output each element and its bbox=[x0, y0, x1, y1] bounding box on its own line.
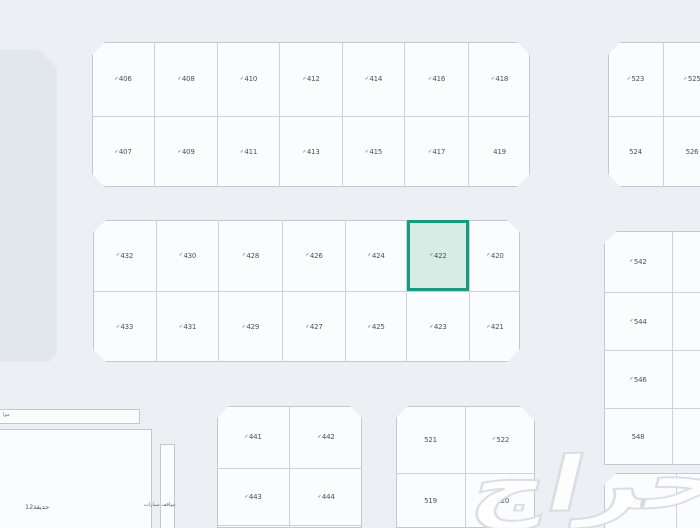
check-icon: ✓ bbox=[177, 149, 181, 155]
plot-number: ✓423 bbox=[429, 323, 446, 331]
block-center-west: ✓432✓430✓428✓426✓424✓422✓420✓433✓431✓429… bbox=[93, 220, 520, 362]
check-icon: ✓ bbox=[683, 76, 687, 82]
plot-411[interactable]: ✓411 bbox=[217, 116, 279, 187]
check-icon: ✓ bbox=[305, 252, 309, 258]
plot-444[interactable]: ✓444 bbox=[289, 468, 362, 525]
check-icon: ✓ bbox=[114, 76, 118, 82]
check-icon: ✓ bbox=[367, 252, 371, 258]
check-icon: ✓ bbox=[629, 376, 633, 382]
map-canvas: ✓406✓408✓410✓412✓414✓416✓418✓407✓409✓411… bbox=[0, 0, 700, 528]
check-icon: ✓ bbox=[429, 324, 433, 330]
plot-empty bbox=[672, 350, 700, 408]
plot-number: ✓414 bbox=[365, 75, 382, 83]
check-icon: ✓ bbox=[491, 76, 495, 82]
plot-542[interactable]: ✓542 bbox=[604, 231, 672, 292]
plot-number: ✓406 bbox=[114, 75, 131, 83]
plot-443[interactable]: ✓443 bbox=[217, 468, 289, 525]
check-icon: ✓ bbox=[627, 76, 631, 82]
plot-empty bbox=[672, 408, 700, 465]
plot-number: ✓546 bbox=[629, 376, 646, 384]
plot-number: ✓425 bbox=[367, 323, 384, 331]
plot-407[interactable]: ✓407 bbox=[92, 116, 154, 187]
plot-522[interactable]: ✓522 bbox=[465, 406, 535, 473]
plot-521[interactable]: 521 bbox=[396, 406, 465, 473]
check-icon: ✓ bbox=[114, 149, 118, 155]
check-icon: ✓ bbox=[492, 498, 496, 504]
plot-424[interactable]: ✓424 bbox=[345, 220, 406, 291]
check-icon: ✓ bbox=[365, 149, 369, 155]
check-icon: ✓ bbox=[302, 149, 306, 155]
plot-number: ✓408 bbox=[177, 75, 194, 83]
plot-431[interactable]: ✓431 bbox=[156, 291, 218, 362]
check-icon: ✓ bbox=[486, 252, 490, 258]
plot-number: ✓542 bbox=[629, 258, 646, 266]
plot-number: ✓431 bbox=[179, 323, 196, 331]
plot-421[interactable]: ✓421 bbox=[469, 291, 520, 362]
plot-number: ✓416 bbox=[428, 75, 445, 83]
plot-number: ✓444 bbox=[317, 493, 334, 501]
plot-number: ✓525 bbox=[683, 75, 700, 83]
check-icon: ✓ bbox=[116, 324, 120, 330]
plot-number: ✓432 bbox=[116, 252, 133, 260]
plot-number: ✓544 bbox=[629, 318, 646, 326]
plot-409[interactable]: ✓409 bbox=[154, 116, 217, 187]
block-center-east: ✓542✓544✓546548 bbox=[604, 231, 700, 465]
plot-number: ✓410 bbox=[240, 75, 257, 83]
check-icon: ✓ bbox=[240, 149, 244, 155]
plot-525[interactable]: ✓525 bbox=[663, 42, 700, 116]
check-icon: ✓ bbox=[629, 258, 633, 264]
plot-427[interactable]: ✓427 bbox=[282, 291, 345, 362]
plot-519[interactable]: 519 bbox=[396, 473, 465, 528]
check-icon: ✓ bbox=[179, 252, 183, 258]
plot-429[interactable]: ✓429 bbox=[218, 291, 282, 362]
plot-number: ✓430 bbox=[179, 252, 196, 260]
blocks-layer: ✓406✓408✓410✓412✓414✓416✓418✓407✓409✓411… bbox=[0, 0, 700, 528]
plot-number: ✓407 bbox=[114, 148, 131, 156]
check-icon: ✓ bbox=[116, 252, 120, 258]
plot-number: 519 bbox=[424, 497, 437, 505]
plot-number: ✓428 bbox=[242, 252, 259, 260]
check-icon: ✓ bbox=[492, 436, 496, 442]
plot-520[interactable]: ✓520 bbox=[465, 473, 535, 528]
plot-416[interactable]: ✓416 bbox=[404, 42, 468, 116]
plot-406[interactable]: ✓406 bbox=[92, 42, 154, 116]
plot-415[interactable]: ✓415 bbox=[342, 116, 404, 187]
plot-548[interactable]: 548 bbox=[604, 408, 672, 465]
plot-number: ✓421 bbox=[486, 323, 503, 331]
check-icon: ✓ bbox=[629, 318, 633, 324]
check-icon: ✓ bbox=[244, 434, 248, 440]
plot-523[interactable]: ✓523 bbox=[608, 42, 663, 116]
plot-433[interactable]: ✓433 bbox=[93, 291, 156, 362]
plot-number: ✓413 bbox=[302, 148, 319, 156]
block-south-west: ✓441✓442✓443✓444 bbox=[217, 406, 362, 528]
check-icon: ✓ bbox=[317, 434, 321, 440]
plot-number: ✓520 bbox=[492, 497, 509, 505]
plot-number: ✓522 bbox=[492, 436, 509, 444]
plot-414[interactable]: ✓414 bbox=[342, 42, 404, 116]
plot-425[interactable]: ✓425 bbox=[345, 291, 406, 362]
check-icon: ✓ bbox=[365, 76, 369, 82]
plot-number: ✓417 bbox=[428, 148, 445, 156]
check-icon: ✓ bbox=[302, 76, 306, 82]
check-icon: ✓ bbox=[177, 76, 181, 82]
plot-number: ✓426 bbox=[305, 252, 322, 260]
check-icon: ✓ bbox=[428, 149, 432, 155]
plot-524[interactable]: 524 bbox=[608, 116, 663, 187]
plot-413[interactable]: ✓413 bbox=[279, 116, 342, 187]
plot-number: ✓424 bbox=[367, 252, 384, 260]
plot-number: ✓412 bbox=[302, 75, 319, 83]
plot-number: ✓442 bbox=[317, 433, 334, 441]
plot-426[interactable]: ✓426 bbox=[282, 220, 345, 291]
plot-410[interactable]: ✓410 bbox=[217, 42, 279, 116]
check-icon: ✓ bbox=[179, 324, 183, 330]
plot-number: ✓418 bbox=[491, 75, 508, 83]
plot-412[interactable]: ✓412 bbox=[279, 42, 342, 116]
plot-number: ✓415 bbox=[365, 148, 382, 156]
plot-number: 548 bbox=[632, 433, 645, 441]
plot-number: ✓429 bbox=[242, 323, 259, 331]
plot-423[interactable]: ✓423 bbox=[406, 291, 469, 362]
plot-441[interactable]: ✓441 bbox=[217, 406, 289, 468]
plot-number: ✓523 bbox=[627, 75, 644, 83]
plot-417[interactable]: ✓417 bbox=[404, 116, 468, 187]
plot-number: 526 bbox=[686, 148, 699, 156]
plot-430[interactable]: ✓430 bbox=[156, 220, 218, 291]
plot-428[interactable]: ✓428 bbox=[218, 220, 282, 291]
plot-number: ✓422 bbox=[429, 252, 446, 260]
plot-number: 419 bbox=[493, 148, 506, 156]
plot-number: ✓420 bbox=[486, 252, 503, 260]
check-icon: ✓ bbox=[429, 252, 433, 258]
plot-number: ✓441 bbox=[244, 433, 261, 441]
plot-number: ✓433 bbox=[116, 323, 133, 331]
plot-422[interactable]: ✓422 bbox=[406, 220, 469, 291]
plot-442[interactable]: ✓442 bbox=[289, 406, 362, 468]
plot-420[interactable]: ✓420 bbox=[469, 220, 520, 291]
check-icon: ✓ bbox=[305, 324, 309, 330]
block-north-east: ✓523✓525524526 bbox=[608, 42, 700, 187]
plot-550[interactable]: 550 bbox=[604, 473, 676, 528]
block-north-west: ✓406✓408✓410✓412✓414✓416✓418✓407✓409✓411… bbox=[92, 42, 530, 187]
check-icon: ✓ bbox=[240, 76, 244, 82]
check-icon: ✓ bbox=[428, 76, 432, 82]
plot-419[interactable]: 419 bbox=[468, 116, 530, 187]
plot-number: 524 bbox=[629, 148, 642, 156]
plot-empty bbox=[672, 292, 700, 350]
plot-number: 521 bbox=[424, 436, 437, 444]
plot-number: ✓411 bbox=[240, 148, 257, 156]
parking-text: مواقف سيارات bbox=[144, 502, 176, 508]
plot-432[interactable]: ✓432 bbox=[93, 220, 156, 291]
check-icon: ✓ bbox=[317, 494, 321, 500]
plot-number: ✓427 bbox=[305, 323, 322, 331]
check-icon: ✓ bbox=[367, 324, 371, 330]
plot-418[interactable]: ✓418 bbox=[468, 42, 530, 116]
plot-546[interactable]: ✓546 bbox=[604, 350, 672, 408]
plot-408[interactable]: ✓408 bbox=[154, 42, 217, 116]
plot-empty bbox=[672, 231, 700, 292]
plot-empty bbox=[676, 473, 700, 528]
plot-number: ✓409 bbox=[177, 148, 194, 156]
plot-544[interactable]: ✓544 bbox=[604, 292, 672, 350]
plot-number: ✓443 bbox=[244, 493, 261, 501]
check-icon: ✓ bbox=[242, 252, 246, 258]
block-south-center: 521✓522519✓520 bbox=[396, 406, 535, 528]
block-south-east: 550 bbox=[604, 473, 700, 528]
check-icon: ✓ bbox=[242, 324, 246, 330]
plot-526[interactable]: 526 bbox=[663, 116, 700, 187]
check-icon: ✓ bbox=[486, 324, 490, 330]
check-icon: ✓ bbox=[244, 494, 248, 500]
plot-number: 550 bbox=[634, 499, 647, 507]
